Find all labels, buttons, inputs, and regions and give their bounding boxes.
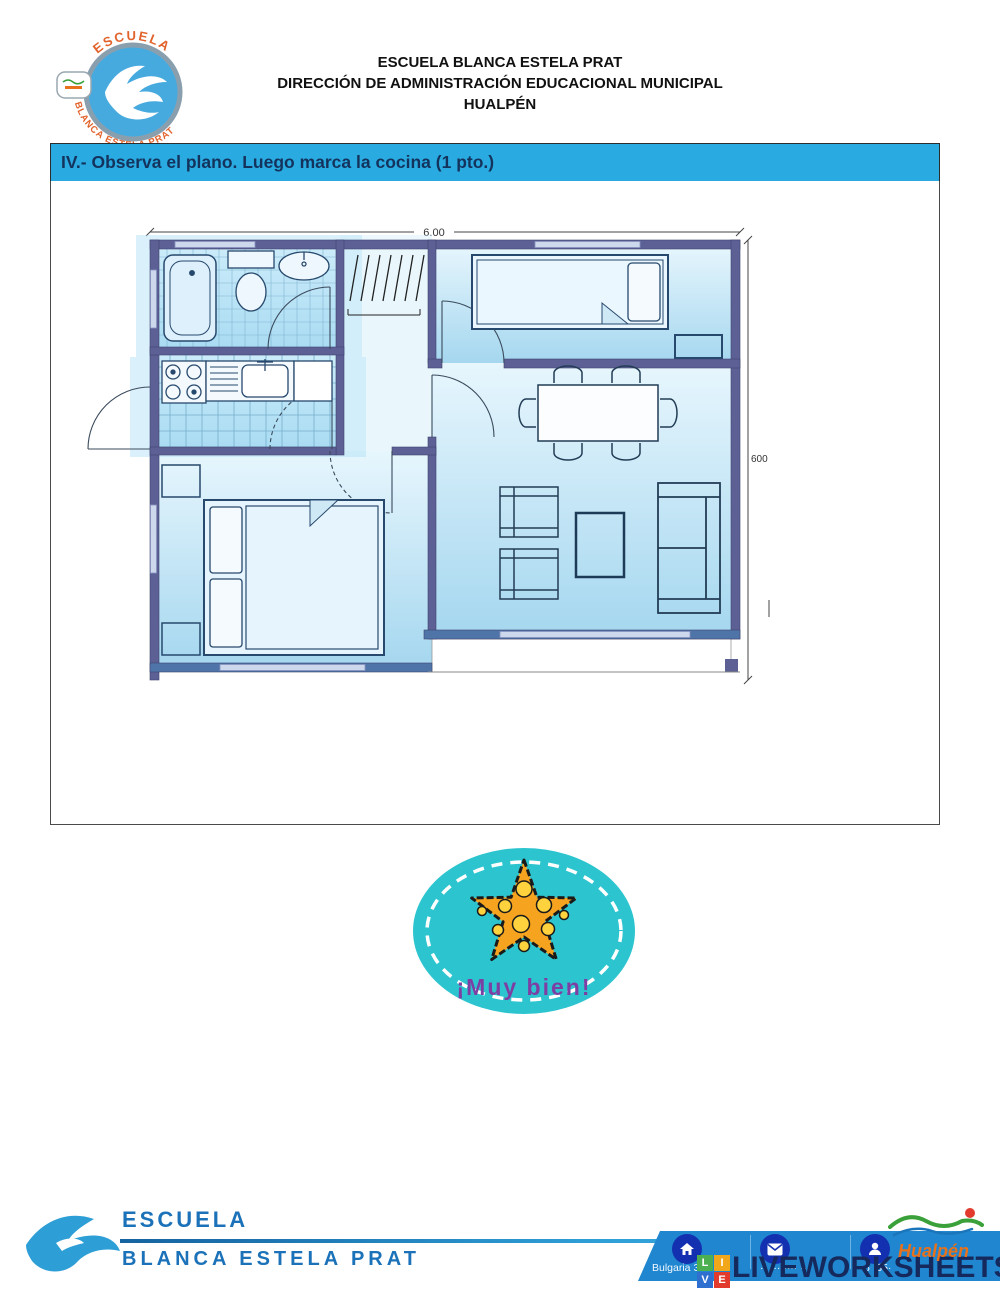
muy-bien-badge: ¡Muy bien! xyxy=(408,845,640,1017)
footer-school-line2: BLANCA ESTELA PRAT xyxy=(122,1248,420,1271)
school-dept-line: DIRECCIÓN DE ADMINISTRACIÓN EDUCACIONAL … xyxy=(170,73,830,94)
bathtub xyxy=(164,255,216,341)
task-title: IV.- Observa el plano. Luego marca la co… xyxy=(51,152,494,173)
kitchen-counter-sink[interactable] xyxy=(206,359,294,401)
patio xyxy=(432,639,731,672)
bathroom-sink xyxy=(279,252,329,280)
footer-seagull-icon xyxy=(22,1203,134,1287)
school-header: ESCUELA BLANCA ESTELA PRAT DIRECCIÓN DE … xyxy=(170,52,830,115)
double-bed xyxy=(204,500,384,655)
fridge[interactable] xyxy=(294,361,332,401)
hualpen-label: Hualpén xyxy=(898,1241,969,1261)
worksheet-page: ESCUELA BLANCA ESTELA PRAT ESCUELA BLANC… xyxy=(0,0,1000,1291)
liveworksheets-blocks-icon: L I V E xyxy=(697,1255,730,1288)
highlight-hall xyxy=(340,235,432,451)
patio-corner-post xyxy=(725,659,738,672)
task-title-bar: IV.- Observa el plano. Luego marca la co… xyxy=(50,143,940,182)
single-bed xyxy=(472,255,668,329)
school-name-line: ESCUELA BLANCA ESTELA PRAT xyxy=(170,52,830,73)
dimension-right-label: 600 xyxy=(751,454,768,465)
badge-label: ¡Muy bien! xyxy=(457,974,592,1000)
hualpen-logo: Hualpén xyxy=(884,1205,996,1267)
footer-school-line1: ESCUELA xyxy=(122,1207,248,1233)
floor-plan[interactable]: 6.00 600 xyxy=(80,215,776,695)
stove[interactable] xyxy=(162,361,206,403)
school-city-line: HUALPÉN xyxy=(170,94,830,115)
dining-table xyxy=(538,385,658,441)
logo-mini-tag xyxy=(57,72,91,98)
